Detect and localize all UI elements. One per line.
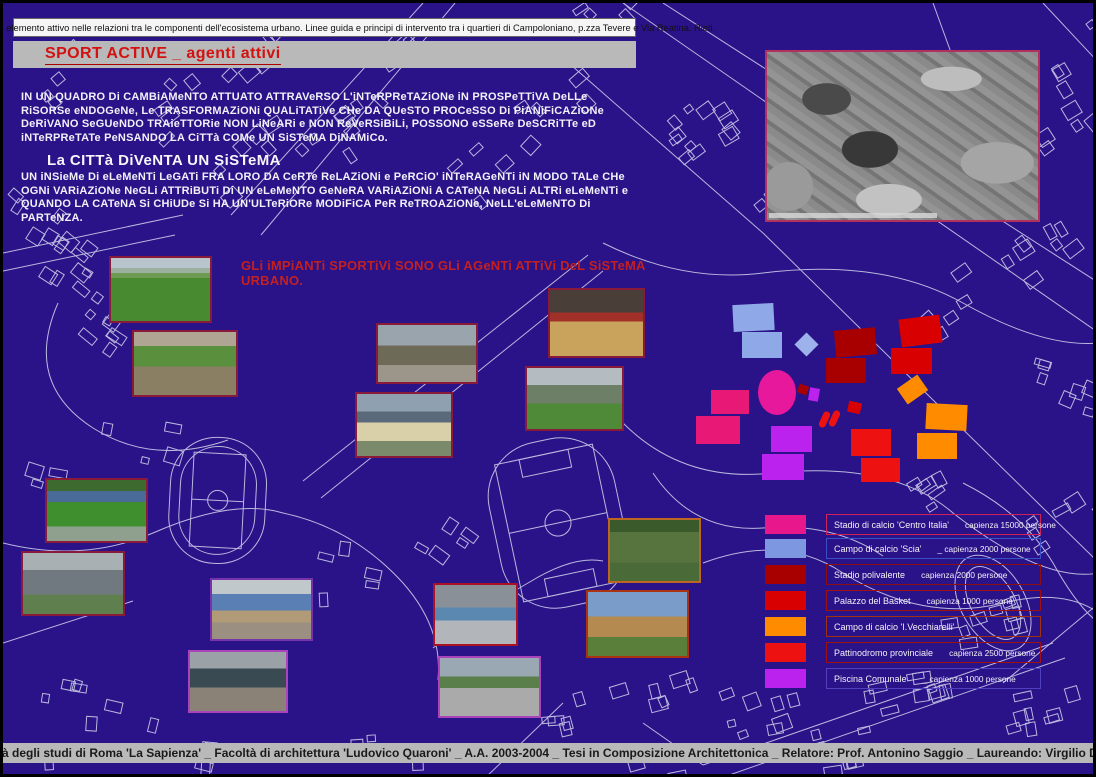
legend-swatch bbox=[765, 643, 806, 662]
photo-campo-vista-aerea bbox=[132, 330, 238, 397]
photo-pattinodromo-tribune bbox=[433, 583, 518, 646]
poster-board: Lo SPORT come elemento attivo nelle rela… bbox=[0, 0, 1096, 777]
footer-strip: Università degli studi di Roma 'La Sapie… bbox=[3, 743, 1096, 763]
header-strip-text: Lo SPORT come elemento attivo nelle rela… bbox=[0, 23, 715, 33]
legend-label: Stadio polivalente bbox=[834, 570, 905, 580]
legend-capacity: capienza 15000 persone bbox=[965, 520, 1056, 530]
photo-chiosco-legno bbox=[586, 590, 689, 658]
legend-row: Piscina Comunale_ capienza 1000 persone bbox=[826, 668, 1041, 689]
legend-capacity: _ capienza 2000 persone bbox=[937, 544, 1030, 554]
legend-capacity: capienza 2000 persone bbox=[921, 570, 1007, 580]
legend-swatch bbox=[765, 565, 806, 584]
facility-marker bbox=[771, 426, 812, 452]
facility-marker bbox=[834, 327, 877, 357]
title-strip: SPORT ACTIVE _ agenti attivi bbox=[13, 41, 636, 68]
photo-stadio-centro-italia bbox=[45, 478, 148, 543]
legend-row: Campo di calcio 'I.Vecchiarelli' bbox=[826, 616, 1041, 637]
aerial-photo-caption bbox=[769, 213, 937, 218]
facility-marker bbox=[861, 458, 900, 482]
facility-marker bbox=[742, 332, 782, 358]
facility-marker bbox=[898, 315, 942, 348]
facility-marker bbox=[711, 390, 749, 414]
subheading: La CITTà DiVeNTA UN SiSTeMA bbox=[47, 152, 281, 169]
legend-label: Piscina Comunale bbox=[834, 674, 907, 684]
legend-label: Pattinodromo provinciale bbox=[834, 648, 933, 658]
legend-capacity: capienza 2500 persone bbox=[949, 648, 1035, 658]
footer-text: Università degli studi di Roma 'La Sapie… bbox=[0, 746, 1096, 760]
statement-text: GLi iMPiANTi SPORTiVi SONO GLi AGeNTi AT… bbox=[241, 258, 681, 288]
facility-marker bbox=[917, 433, 957, 459]
legend-swatch bbox=[765, 591, 806, 610]
system-paragraph: UN iNSieMe Di eLeMeNTi LeGATi FRA LORO D… bbox=[21, 171, 641, 225]
legend-swatch bbox=[765, 617, 806, 636]
intro-paragraph: IN UN QUADRO Di CAMBiAMeNTO ATTUATO ATTR… bbox=[21, 91, 637, 145]
photo-tribuna-cemento bbox=[21, 551, 125, 616]
legend-label: Campo di calcio 'I.Vecchiarelli' bbox=[834, 622, 955, 632]
legend-label: Campo di calcio 'Scia' bbox=[834, 544, 921, 554]
facility-marker bbox=[925, 403, 967, 431]
facility-marker bbox=[891, 348, 932, 374]
facility-marker bbox=[826, 358, 866, 383]
facility-marker bbox=[696, 416, 740, 444]
legend-swatch bbox=[765, 669, 806, 688]
facility-marker bbox=[851, 429, 891, 456]
photo-palasport-interno bbox=[548, 288, 645, 358]
facility-marker bbox=[847, 401, 862, 414]
legend-row: Stadio di calcio 'Centro Italia'capienza… bbox=[826, 514, 1041, 535]
legend-swatch bbox=[765, 539, 806, 558]
legend-label: Palazzo del Basket bbox=[834, 596, 911, 606]
legend-swatch bbox=[765, 515, 806, 534]
legend-row: Campo di calcio 'Scia'_ capienza 2000 pe… bbox=[826, 538, 1041, 559]
photo-campo-recintato bbox=[608, 518, 701, 583]
legend-row: Palazzo del Basketcapienza 1000 persone bbox=[826, 590, 1041, 611]
photo-capannone-blu bbox=[210, 578, 313, 641]
facility-marker bbox=[732, 303, 774, 332]
facility-marker bbox=[758, 370, 796, 415]
legend-capacity: capienza 1000 persone bbox=[927, 596, 1013, 606]
photo-campo-calcio-panorama bbox=[109, 256, 212, 323]
photo-edificio-scolastico bbox=[355, 392, 453, 458]
photo-capannone-campo bbox=[188, 650, 288, 713]
facility-marker bbox=[762, 454, 804, 480]
photo-palazzetto-colonnato bbox=[525, 366, 624, 431]
photo-percorso-pavimentato bbox=[438, 656, 541, 718]
aerial-photo bbox=[765, 50, 1040, 222]
page-title: SPORT ACTIVE _ agenti attivi bbox=[45, 45, 281, 65]
legend-label: Stadio di calcio 'Centro Italia' bbox=[834, 520, 949, 530]
legend-capacity: _ capienza 1000 persone bbox=[923, 674, 1016, 684]
legend-row: Pattinodromo provincialecapienza 2500 pe… bbox=[826, 642, 1041, 663]
legend-row: Stadio polivalentecapienza 2000 persone bbox=[826, 564, 1041, 585]
header-strip: Lo SPORT come elemento attivo nelle rela… bbox=[13, 18, 636, 37]
photo-stadio-polivalente bbox=[376, 323, 478, 384]
